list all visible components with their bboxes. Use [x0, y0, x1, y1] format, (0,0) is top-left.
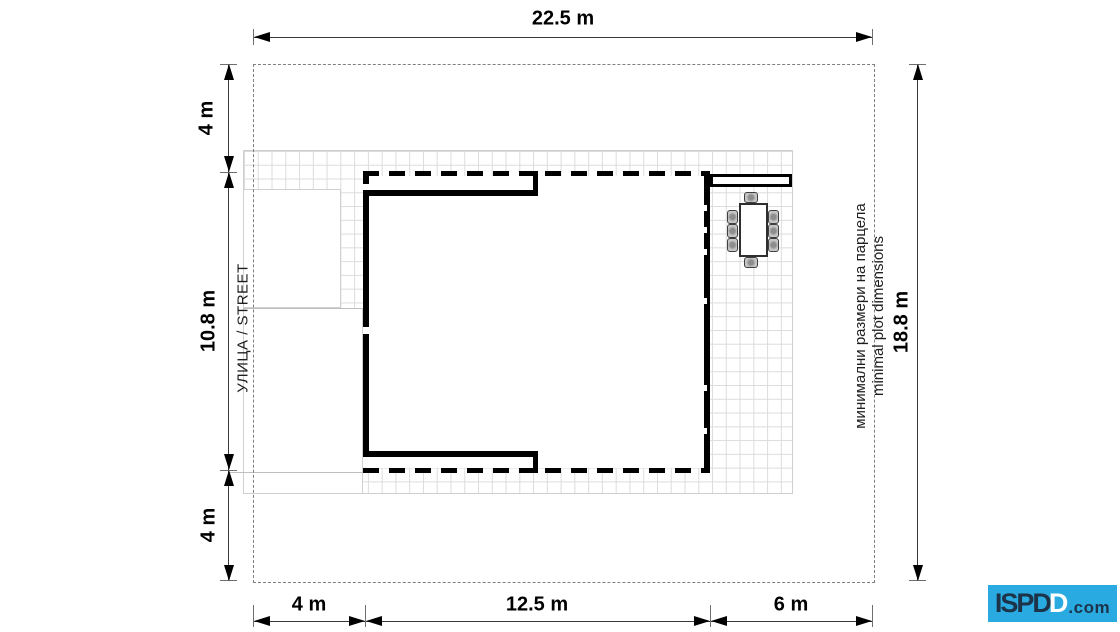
street-label: УЛИЦА / STREET [235, 263, 252, 392]
dim-top-line [253, 37, 873, 38]
dim-bottom-label-left: 4 m [292, 594, 326, 617]
wall-right-gap-5 [704, 385, 707, 391]
dim-top-arrow-right-icon [856, 32, 872, 42]
wall-left [363, 171, 369, 457]
dim-top-tick-right [872, 29, 873, 45]
dim-left-label-bottom: 4 m [198, 508, 221, 542]
dim-bottom-arrow-5-icon [711, 616, 727, 626]
dim-right-arrow-bottom-icon [913, 565, 923, 581]
spd-logo: ISPDD.com [988, 585, 1117, 622]
plot-note: минимални размери на парцела minimal plo… [852, 203, 888, 429]
plot-note-line1: минимални размери на парцела [852, 203, 870, 429]
dim-bottom-arrow-2-icon [349, 616, 365, 626]
chair-left-3 [727, 238, 738, 252]
logo-highlight-letter: D [1049, 590, 1067, 617]
chair-right-1 [768, 210, 779, 224]
dim-top-label: 22.5 m [532, 8, 594, 31]
dim-left-arrow-5-icon [224, 470, 234, 486]
dim-bottom-arrow-6-icon [856, 616, 872, 626]
dim-right-line [917, 64, 918, 581]
logo-prefix: ISPD [995, 590, 1050, 617]
wall-right-gap-6 [704, 428, 707, 434]
dim-right-label: 18.8 m [891, 291, 914, 353]
wall-bottom-step [533, 451, 538, 473]
dim-left-label-top: 4 m [196, 101, 219, 135]
dim-left-arrow-4-icon [224, 454, 234, 470]
chair-left-1 [727, 210, 738, 224]
dim-bottom-arrow-4-icon [694, 616, 710, 626]
wall-bottom [363, 451, 538, 457]
chair-left-2 [727, 224, 738, 238]
dim-left-arrow-1-icon [224, 64, 234, 80]
building-interior [366, 176, 706, 468]
logo-suffix: .com [1068, 598, 1110, 618]
dim-left-arrow-2-icon [224, 156, 234, 172]
dim-bottom-arrow-3-icon [366, 616, 382, 626]
wall-left-opening [363, 327, 369, 334]
pergola-beam [710, 174, 792, 187]
site-plan-canvas: 22.5 m 4 m 10.8 m 4 m УЛИЦА / STREET 18.… [0, 0, 1120, 632]
dim-bottom-tick-4 [872, 605, 873, 627]
dim-top-arrow-left-icon [254, 32, 270, 42]
dim-left-arrow-6-icon [224, 565, 234, 581]
dim-bottom-arrow-1-icon [254, 616, 270, 626]
wall-right-gap-1 [704, 205, 707, 211]
dim-bottom-label-right: 6 m [774, 594, 808, 617]
chair-right-2 [768, 224, 779, 238]
chair-top [744, 192, 758, 203]
dim-bottom-line [253, 621, 873, 622]
dim-left-arrow-3-icon [224, 172, 234, 188]
dim-left-line [228, 64, 229, 581]
plot-note-line2: minimal plot dimensions [870, 203, 888, 429]
wall-right-gap-3 [704, 249, 707, 255]
wall-top-step [533, 171, 538, 196]
dim-left-label-middle: 10.8 m [198, 290, 221, 352]
dim-right-arrow-top-icon [913, 64, 923, 80]
wall-right-gap-2 [704, 227, 707, 233]
chair-right-3 [768, 238, 779, 252]
dim-bottom-label-middle: 12.5 m [506, 594, 568, 617]
wall-right-gap-4 [704, 298, 707, 304]
dining-table [739, 203, 768, 257]
chair-bottom [744, 257, 758, 268]
wall-top [363, 190, 538, 196]
